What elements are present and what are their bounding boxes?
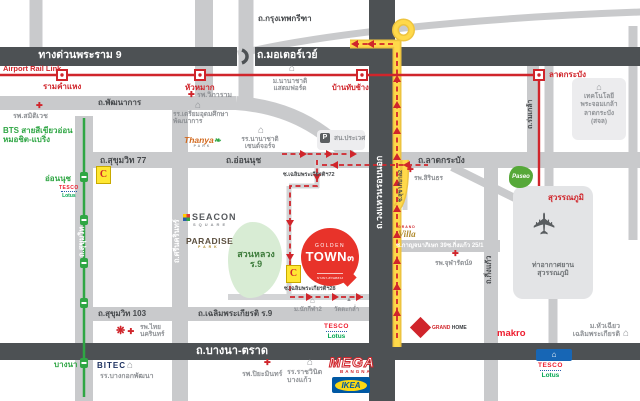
- nakkila-village: ม.นักกีฬา2: [294, 307, 322, 314]
- seacon-square-logo: SEACON SQUARE: [183, 213, 237, 227]
- road-label-chalerm-prakiat: ถ.เฉลิมพระเกียรติ ร.9: [198, 310, 272, 319]
- international-school: รร.นานาชาติ เซนต์จอร์จ: [236, 136, 284, 150]
- grandhome-label-2: HOME: [452, 325, 467, 331]
- hospital-cross-icon: ✚: [407, 166, 414, 175]
- rajwinit-school: รร.ราชวินิต บางแก้ว: [287, 369, 322, 384]
- stamford-label-2: แสตมฟอร์ด: [266, 85, 314, 92]
- hospital-cross-icon: ✚: [36, 102, 43, 111]
- tesco-lotus-logo: TESCO Lotus: [324, 324, 349, 340]
- seacon-label-2: SQUARE: [193, 223, 237, 227]
- intschool-label-2: เซนต์จอร์จ: [236, 143, 284, 150]
- tesco-label: TESCO: [59, 186, 79, 191]
- thainakarin-label-2: นครินทร์: [140, 331, 165, 338]
- building-icon: ⌂: [310, 297, 315, 306]
- ikea-logo: IKEA: [332, 377, 370, 393]
- prawet-police-station: สน.ประเวศ: [334, 135, 365, 142]
- villa-label-2: Villa: [398, 230, 416, 240]
- hospital-cross-icon: ✚: [264, 359, 271, 368]
- road-label-soi-chalerm72: ซ.เฉลิมพระเกียรติฯ72: [283, 172, 335, 178]
- project-brand-num: ๓: [347, 253, 354, 264]
- road-label-sukhumvit: ถ.สุขุมวิท: [78, 220, 86, 264]
- villa-logo: GRAND Villa: [398, 226, 416, 240]
- tesco-lotus-logo: TESCO Lotus: [538, 363, 563, 379]
- lotus-label: Lotus: [538, 373, 563, 380]
- building-icon: ⌂: [258, 125, 264, 136]
- airplane-icon: ✈: [528, 211, 563, 236]
- kmitl-label: ลาดกระบัง: [572, 110, 626, 118]
- bts-line-label-2: หมอชิต-แบริ่ง: [3, 136, 73, 145]
- thanya-park-logo: Thanya❧ PARK: [184, 136, 221, 149]
- project-brand-main: TOWN: [306, 249, 347, 264]
- rajwinit-label-1: รร.ราชวินิต: [287, 369, 322, 377]
- thainakarin-hospital: ❋ ✚: [116, 325, 134, 337]
- road-label-krungthep-kreetha: ถ.กรุงเทพกรีฑา: [258, 15, 312, 24]
- star-logo-icon: ❋: [116, 325, 125, 337]
- station-suvarnabhumi: สุวรรณภูมิ: [548, 194, 584, 203]
- piyamin-hospital: รพ.ปิยะมินทร์: [242, 371, 282, 379]
- wat-takram-temple: วัดตะกล่ำ: [334, 307, 359, 314]
- grand-home-logo: GRAND HOME: [432, 326, 467, 332]
- stamford-university: ม.นานาชาติ แสตมฟอร์ด: [266, 78, 314, 92]
- triamudom-label-2: พัฒนาการ: [173, 118, 228, 125]
- building-icon: ⌂: [127, 360, 133, 371]
- vibharam-label: รพ.วิภาราม: [197, 92, 232, 99]
- ikea-label: IKEA: [335, 380, 367, 391]
- suan-luang-park-label: สวนหลวง ร.9: [231, 250, 281, 270]
- road-label-bangna-trat: ถ.บางนา-ตราด: [196, 345, 268, 357]
- route-map: ⌂ เทคโนโลยี พระจอมเกล้า ลาดกระบัง (สจล) …: [0, 0, 640, 401]
- project-golden-town: GOLDEN TOWN๓ บางนา-สวนหลวง: [301, 228, 359, 286]
- store-building-icon: ⌂: [536, 349, 572, 361]
- lotus-label: Lotus: [324, 334, 349, 341]
- road-label-sukhaphiban2: ซ.สุขาภิบาล2: [398, 164, 404, 208]
- bitec-logo: BITEC: [97, 362, 126, 371]
- road-label-motorway: ถ.มอเตอร์เวย์: [257, 50, 318, 62]
- seacon-label-1: SEACON: [192, 212, 237, 222]
- road-label-srinakarin: ถ.ศรีนครินทร์: [173, 216, 181, 266]
- building-icon: ⌂: [572, 82, 626, 93]
- road-label-onnut: ถ.อ่อนนุช: [226, 156, 261, 165]
- paradise-park-logo: PARADISE PARK: [186, 237, 233, 250]
- airport-label-2: สุวรรณภูมิ: [516, 270, 590, 278]
- grandhome-label-1: GRAND: [432, 325, 450, 331]
- building-icon: ⌂: [289, 63, 295, 74]
- road-label-rom-klao: ถ.ร่มเกล้า: [527, 94, 535, 134]
- lotus-label: Lotus: [59, 194, 79, 199]
- building-icon: ⌂: [195, 100, 201, 111]
- police-station-icon: P: [320, 133, 330, 143]
- building-icon: ⌂: [307, 357, 313, 368]
- suvarnabhumi-airport-label: ท่าอากาศยาน สุวรรณภูมิ: [516, 262, 590, 277]
- samitivej-hospital: รพ.สมิติเวช: [13, 113, 48, 121]
- road-label-soi-chalerm28: ซ.เฉลิมพระเกียรติฯ28: [284, 286, 336, 292]
- road-label-phatthanakan: ถ.พัฒนาการ: [98, 99, 141, 108]
- mega-bangna-sub-label: BANGNA: [340, 369, 372, 374]
- seacon-icon: [183, 214, 190, 221]
- thanya-label-2: PARK: [184, 145, 221, 149]
- paseo-label: Paseo: [512, 174, 530, 180]
- road-label-expressway: ทางด่วนพระราม 9: [30, 50, 130, 62]
- temple-icon: ▲: [346, 297, 352, 304]
- mega-bangna-logo: MEGA: [329, 354, 375, 370]
- huachiew-label-2: เฉลิมพระเกียรติ: [558, 331, 620, 339]
- chularat-hospital: รพ.จุฬารัตน์9: [435, 260, 472, 267]
- makro-logo: makro: [497, 329, 526, 339]
- project-brand-sub: บางนา-สวนหลวง: [317, 273, 343, 281]
- hospital-cross-icon: ✚: [127, 327, 134, 336]
- station-bangna: บางนา: [54, 361, 77, 370]
- bangkok-patana-school: รร.บางกอกพัฒนา: [100, 373, 154, 381]
- airport-label-1: ท่าอากาศยาน: [516, 262, 590, 270]
- road-label-lat-krabang: ถ.ลาดกระบัง: [418, 156, 465, 165]
- rajwinit-label-2: บางแก้ว: [287, 377, 322, 385]
- hospital-cross-icon: ✚: [188, 90, 195, 99]
- road-label-ring-road: ถ.วงแหวนรอบนอก: [375, 140, 385, 245]
- tesco-lotus-logo: TESCO Lotus: [59, 186, 79, 199]
- road-label-king-kaew: ถ.กิ่งแก้ว: [485, 248, 493, 292]
- bigc-store-icon: C: [286, 265, 301, 283]
- station-banthapchang: บ้านทับช้าง: [332, 84, 369, 92]
- park-label-2: ร.9: [231, 260, 281, 270]
- station-onnut: อ่อนนุช: [45, 175, 71, 184]
- tesco-label: TESCO: [538, 363, 563, 370]
- vibharam-hospital: ✚ รพ.วิภาราม: [188, 91, 232, 100]
- airport-terminal: [513, 186, 593, 299]
- station-latkrabang: ลาดกระบัง: [549, 71, 586, 80]
- kmitl-label: (สจล): [572, 118, 626, 126]
- kmitl-university-box: ⌂ เทคโนโลยี พระจอมเกล้า ลาดกระบัง (สจล): [572, 78, 626, 140]
- road-label-soi-kanchana39: ซ.กาญจนาภิเษก 39: [396, 243, 447, 250]
- tesco-label: TESCO: [324, 324, 349, 331]
- road-label-sukhumvit77: ถ.สุขุมวิท 77: [100, 156, 146, 165]
- building-icon: ⌂: [623, 328, 629, 339]
- sirindhorn-hospital: รพ.สิรินธร: [414, 175, 443, 182]
- thainakarin-label: รพ.ไทย นครินทร์: [140, 324, 165, 338]
- paradise-label-2: PARK: [198, 246, 233, 250]
- bts-line-label: BTS สายสีเขียวอ่อน หมอชิต-แบริ่ง: [3, 127, 73, 145]
- huachiew-university: ม.หัวเฉียว เฉลิมพระเกียรติ: [558, 323, 620, 338]
- road-label-sukhumvit103: ถ.สุขุมวิท 103: [98, 310, 146, 319]
- triamudom-school: รร.เตรียมอุดมศึกษา พัฒนาการ: [173, 111, 228, 125]
- airport-rail-link-label: Airport Rail Link: [3, 65, 61, 73]
- bigc-store-icon: C: [96, 166, 111, 184]
- kmitl-label: พระจอมเกล้า: [572, 101, 626, 109]
- station-ramkhamhaeng: รามคำแหง: [43, 83, 81, 92]
- huachiew-label-1: ม.หัวเฉียว: [558, 323, 620, 331]
- hospital-cross-icon: ✚: [452, 250, 459, 259]
